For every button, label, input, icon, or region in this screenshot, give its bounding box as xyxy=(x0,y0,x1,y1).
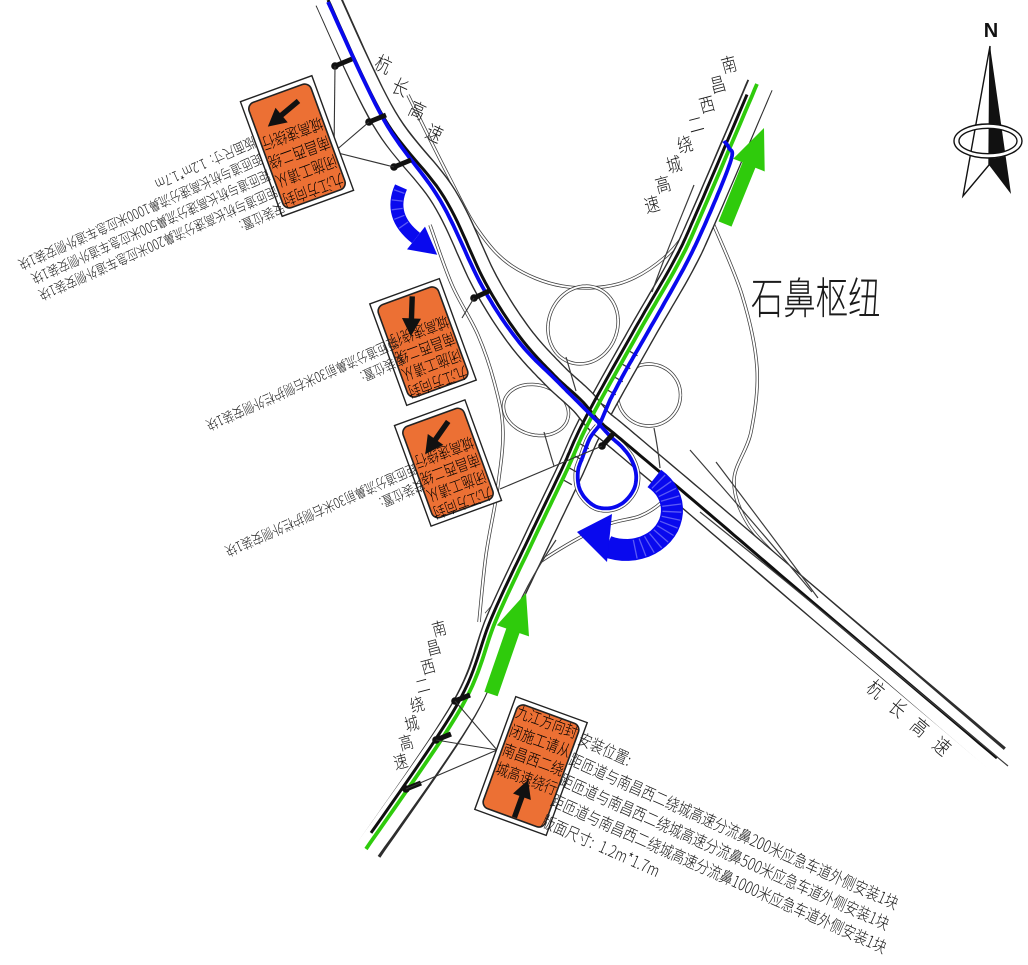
svg-text:N: N xyxy=(984,20,998,42)
